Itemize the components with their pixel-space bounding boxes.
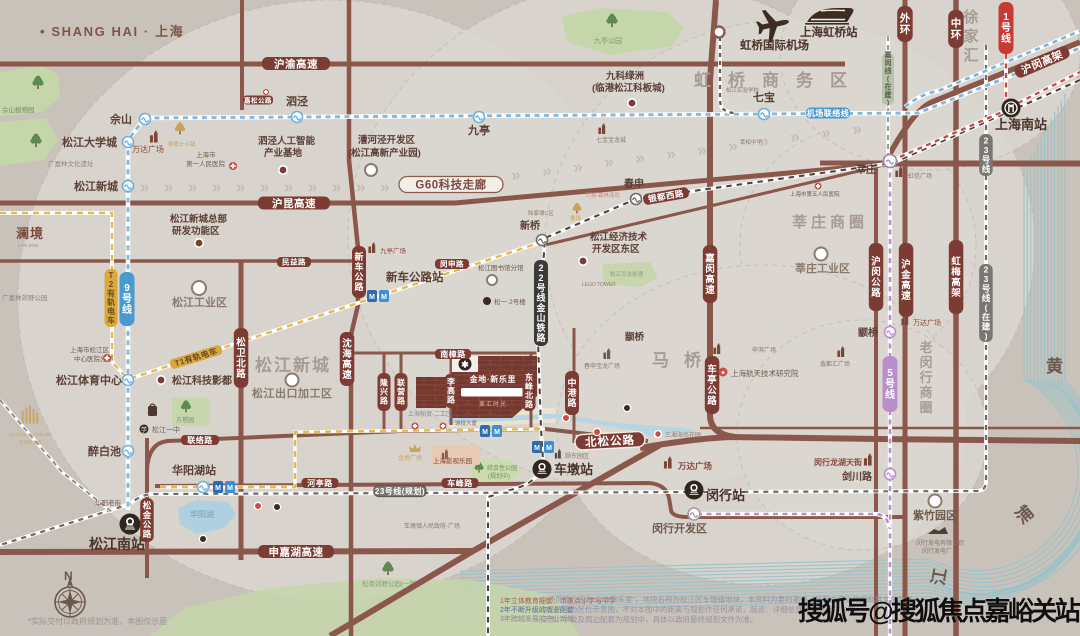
svg-text:峯汇时光: 峯汇时光 [479,400,507,408]
svg-text:产业基地: 产业基地 [264,147,303,159]
svg-text:剑川路: 剑川路 [841,470,873,483]
svg-text:联络路: 联络路 [187,435,213,445]
svg-text:✱: ✱ [461,360,469,370]
svg-text:颐东园区: 颐东园区 [565,452,589,460]
svg-text:华阳湖站: 华阳湖站 [172,463,216,477]
svg-text:陆家埭C区: 陆家埭C区 [528,209,554,217]
svg-text:松卫北路: 松卫北路 [236,336,246,380]
svg-text:G60科技走廊: G60科技走廊 [415,178,486,192]
svg-text:»: » [140,177,149,196]
svg-text:醉白池: 醉白池 [88,444,121,458]
svg-text:江: 江 [929,567,951,587]
svg-text:机场联络线: 机场联络线 [807,108,850,118]
svg-text:M: M [369,294,375,301]
svg-text:颛桥: 颛桥 [858,326,879,339]
svg-text:上海虹桥站: 上海虹桥站 [800,25,858,39]
svg-text:方塔园: 方塔园 [176,416,194,424]
svg-text:松江新城: 松江新城 [255,355,331,375]
svg-text:»: » [284,177,293,196]
svg-text:虹桥商务区: 虹桥商务区 [694,70,864,90]
svg-text:上海市: 上海市 [196,150,216,159]
svg-text:松江图书馆分馆: 松江图书馆分馆 [478,263,524,272]
svg-text:»: » [212,177,221,196]
svg-text:松金公路: 松金公路 [142,501,152,540]
svg-text:新车公路: 新车公路 [354,251,364,292]
svg-text:申滨广场: 申滨广场 [752,346,776,354]
svg-text:河亭路: 河亭路 [307,478,333,488]
svg-text:金地广场: 金地广场 [398,454,422,462]
svg-text:马桥: 马桥 [652,351,716,370]
svg-text:徐家汇: 徐家汇 [962,8,978,64]
svg-text:九科绿洲: 九科绿洲 [605,70,644,82]
svg-text:松江一中: 松江一中 [152,425,180,434]
svg-text:上海市第五人民医院: 上海市第五人民医院 [790,190,840,198]
svg-text:莘松中学: 莘松中学 [740,138,763,146]
svg-text:隆兴路: 隆兴路 [380,378,389,406]
svg-text:澜境: 澜境 [16,226,44,241]
svg-text:松江工业区: 松江工业区 [172,295,227,309]
svg-text:»: » [260,177,269,196]
svg-text:沈海高速: 沈海高速 [342,337,352,381]
svg-text:莘庄: 莘庄 [856,163,876,176]
svg-text:松江出口加工区: 松江出口加工区 [252,386,333,400]
svg-text:M: M [215,485,221,492]
svg-text:莘庄商圈: 莘庄商圈 [792,213,868,231]
svg-text:闵行站: 闵行站 [706,488,745,503]
svg-text:M: M [227,485,233,492]
svg-text:华阳老街: 华阳老街 [95,498,122,507]
svg-text:第一人民医院: 第一人民医院 [186,159,226,168]
svg-text:学: 学 [141,426,147,434]
svg-text:三湘海尚花园: 三湘海尚花园 [665,431,701,439]
svg-text:嘉松公路: 嘉松公路 [243,95,272,104]
svg-text:M: M [494,429,500,436]
svg-text:联营路: 联营路 [397,378,406,406]
svg-text:(临港松江科板城): (临港松江科板城) [592,82,665,94]
svg-text:松江经济技术: 松江经济技术 [590,231,648,243]
svg-text:闵申路: 闵申路 [440,259,464,269]
svg-text:老闵行商圈: 老闵行商圈 [918,340,932,415]
svg-text:松江大学城: 松江大学城 [62,135,117,149]
svg-text:LEGO TOWER: LEGO TOWER [582,282,616,288]
svg-text:• SHANG HAI · 上海: • SHANG HAI · 上海 [40,24,184,39]
svg-text:搜狐号@搜狐焦点嘉峪关站: 搜狐号@搜狐焦点嘉峪关站 [798,596,1080,626]
svg-text:VALLEYS ON THE AIR: VALLEYS ON THE AIR [8,432,51,437]
svg-text:»: » [356,177,365,196]
svg-text:»: » [164,177,173,196]
svg-text:华阳湖: 华阳湖 [190,509,214,519]
svg-text:上海影视乐园: 上海影视乐园 [433,456,472,465]
svg-text:LAN JING: LAN JING [18,243,39,248]
svg-text:M: M [482,429,488,436]
svg-text:N: N [64,569,73,583]
svg-text:泗泾人工智能: 泗泾人工智能 [258,135,316,147]
svg-text:虹梅高架: 虹梅高架 [950,255,961,299]
svg-text:*实际交付以政府规划为准，本图仅示意: *实际交付以政府规划为准，本图仅示意 [28,616,167,626]
svg-text:松一·2号楼: 松一·2号楼 [494,297,526,306]
svg-text:»: » [380,177,389,196]
svg-text:虹桥国际机场: 虹桥国际机场 [740,38,809,52]
svg-text:叠境: 叠境 [570,214,582,222]
svg-text:车墩镇人民政府·广场: 车墩镇人民政府·广场 [404,522,460,530]
svg-text:(规划中): (规划中) [488,472,510,480]
svg-text:南樟路: 南樟路 [440,349,466,359]
svg-text:车墩站: 车墩站 [554,462,593,477]
svg-text:上海航天技术研究院: 上海航天技术研究院 [731,368,799,378]
svg-text:泰晤士小镇: 泰晤士小镇 [168,140,196,148]
svg-text:23号线(规划): 23号线(规划) [375,486,425,496]
svg-text:松江科技影都: 松江科技影都 [172,374,232,387]
svg-text:上海南站: 上海南站 [995,117,1047,132]
svg-text:申嘉湖高速: 申嘉湖高速 [269,545,324,558]
svg-text:九亭公园: 九亭公园 [594,36,622,45]
svg-text:M: M [534,445,540,452]
svg-text:松江南站: 松江南站 [89,536,145,552]
svg-text:M: M [381,294,387,301]
svg-text:沪金高速: 沪金高速 [900,258,911,302]
svg-text:九亭广场: 九亭广场 [380,246,407,255]
svg-text:闵行发电有限公司: 闵行发电有限公司 [916,539,964,547]
svg-text:新车公路站: 新车公路站 [386,270,444,284]
svg-text:漕河泾开发区: 漕河泾开发区 [358,134,416,146]
svg-text:广富林文化遗址: 广富林文化遗址 [48,159,94,168]
svg-text:上海市松江区: 上海市松江区 [70,345,110,354]
svg-text:九亭: 九亭 [467,123,490,137]
svg-text:佘山: 佘山 [109,112,132,126]
svg-text:外环: 外环 [899,12,911,36]
svg-text:闵行龙湖天街: 闵行龙湖天街 [814,457,862,467]
svg-text:中港路: 中港路 [567,377,577,408]
svg-text:云间绿大地: 云间绿大地 [19,439,42,446]
svg-text:鑫都汇广场: 鑫都汇广场 [820,360,850,368]
svg-text:沪闵公路: 沪闵公路 [871,255,881,299]
svg-text:M: M [546,445,552,452]
svg-text:广富林郊野公园: 广富林郊野公园 [2,293,48,302]
svg-text:闵行发电厂: 闵行发电厂 [922,547,952,555]
svg-text:车峰路: 车峰路 [447,478,473,488]
svg-text:综合性公园: 综合性公园 [487,464,517,472]
svg-text:松江新城: 松江新城 [74,179,118,193]
svg-text:东峰北路: 东峰北路 [525,372,534,409]
svg-text:交通、学校及周边配套为规划中，具体以政府最终规划文件为准。: 交通、学校及周边配套为规划中，具体以政府最终规划文件为准。 [540,614,758,624]
svg-text:虹信广场: 虹信广场 [908,172,932,180]
svg-text:闵行开发区: 闵行开发区 [652,521,707,535]
svg-text:»: » [332,177,341,196]
svg-text:松江污水处理: 松江污水处理 [610,270,644,278]
svg-text:莘庄工业区: 莘庄工业区 [795,261,850,275]
svg-text:紫竹园区: 紫竹园区 [913,508,957,522]
svg-text:»: » [236,177,245,196]
svg-text:新桥: 新桥 [520,219,541,232]
svg-text:万达广场: 万达广场 [913,318,941,327]
svg-text:沪昆高速: 沪昆高速 [272,197,316,210]
svg-text:金地·新乐里: 金地·新乐里 [469,374,516,384]
svg-text:泗泾: 泗泾 [286,94,308,108]
svg-text:开发区东区: 开发区东区 [592,243,640,255]
svg-text:»: » [188,177,197,196]
svg-text:三湘·森林海尚: 三湘·森林海尚 [585,191,620,199]
svg-text:七宝宝龙城: 七宝宝龙城 [596,136,626,144]
svg-text:沪渝高速: 沪渝高速 [274,57,318,70]
svg-text:松江新城总部: 松江新城总部 [170,213,228,225]
svg-text:李高路: 李高路 [446,377,456,405]
svg-text:万达广场: 万达广场 [677,461,713,471]
svg-text:研发功能区: 研发功能区 [172,225,220,237]
svg-text:黄: 黄 [1046,356,1063,376]
svg-text:民益路: 民益路 [282,257,306,267]
svg-text:»: » [308,177,317,196]
svg-text:松江体育中心: 松江体育中心 [56,373,122,387]
svg-text:春申宝龙广场: 春申宝龙广场 [584,362,620,370]
svg-text:松江实验学校: 松江实验学校 [726,86,760,94]
svg-text:城投大厦: 城投大厦 [455,419,478,427]
svg-text:中环: 中环 [951,17,962,41]
svg-text:★: ★ [720,370,725,377]
svg-text:嘉闵高速: 嘉闵高速 [704,252,715,296]
svg-text:(松江高新产业园): (松江高新产业园) [348,147,421,159]
svg-text:上海帕贸-二工区: 上海帕贸-二工区 [408,410,452,418]
svg-text:颛桥: 颛桥 [625,331,645,343]
svg-text:佘山植物园: 佘山植物园 [2,105,35,114]
svg-text:春申: 春申 [624,177,644,190]
svg-text:万达广场: 万达广场 [132,144,164,154]
